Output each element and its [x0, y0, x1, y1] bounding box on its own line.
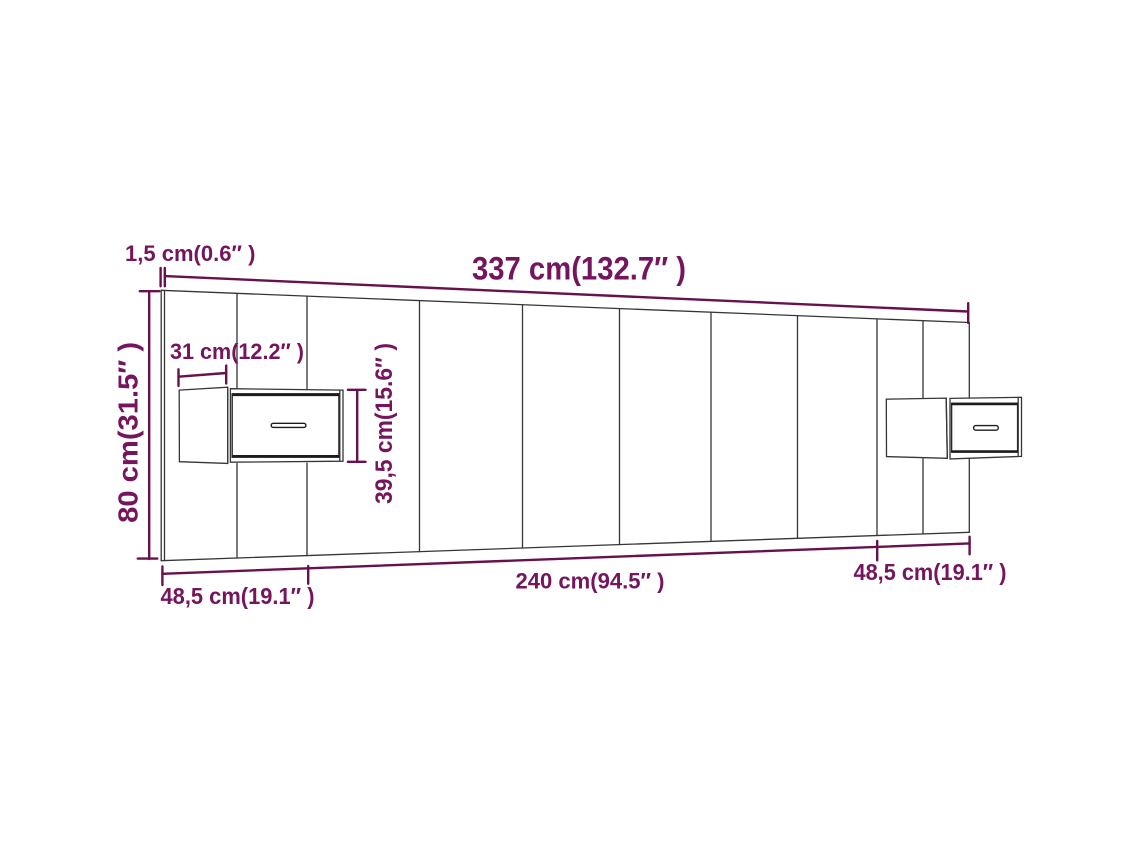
svg-text:39,5 cm(15.6″ ): 39,5 cm(15.6″ ) — [371, 343, 398, 504]
svg-text:80 cm(31.5″ ): 80 cm(31.5″ ) — [113, 342, 144, 523]
svg-text:48,5 cm(19.1″ ): 48,5 cm(19.1″ ) — [854, 559, 1007, 585]
svg-text:240 cm(94.5″ ): 240 cm(94.5″ ) — [516, 569, 665, 594]
svg-text:48,5 cm(19.1″ ): 48,5 cm(19.1″ ) — [161, 583, 315, 609]
svg-text:337 cm(132.7″ ): 337 cm(132.7″ ) — [472, 251, 686, 287]
svg-text:1,5 cm(0.6″ ): 1,5 cm(0.6″ ) — [125, 241, 256, 266]
svg-text:31 cm(12.2″ ): 31 cm(12.2″ ) — [170, 339, 304, 364]
